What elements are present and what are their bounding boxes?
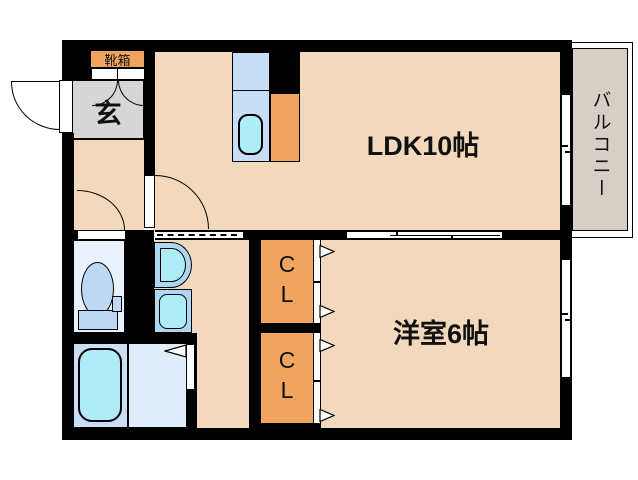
ldk-balcony-window <box>560 95 572 205</box>
corridor-floor <box>197 240 249 428</box>
wall-bath-right-lower <box>186 390 197 428</box>
bedroom-window <box>560 260 572 377</box>
shoebox-label: 靴箱 <box>104 50 130 69</box>
kitchen-counter-upper <box>232 52 270 92</box>
bedroom-label: 洋室6帖 <box>341 314 541 348</box>
ldk-door-leaf <box>144 175 155 228</box>
wall-pipe-space <box>125 230 154 343</box>
wall-hall-ldk <box>144 40 155 175</box>
ldk-label: LDK10帖 <box>323 126 523 160</box>
closet2-label: C L <box>261 343 313 407</box>
wall-genkan-corner <box>72 40 92 80</box>
closet1-door-arrow-bottom <box>319 305 335 318</box>
wall-right-upper <box>560 52 572 95</box>
wall-kitchen-block <box>270 40 300 93</box>
wall-right-lower <box>560 377 572 440</box>
toilet-door-gap <box>78 230 125 240</box>
wall-left-lower <box>62 133 74 440</box>
bedroom-window-tick-2 <box>565 319 571 321</box>
sliding-panel-line <box>390 235 500 236</box>
closet2-door-tick <box>314 380 320 382</box>
wall-closet-divider <box>249 323 321 333</box>
ldk-window-tick-2 <box>565 151 571 153</box>
genkan-label: 玄 <box>72 93 144 129</box>
washroom-sliding-door <box>155 230 243 240</box>
bathroom-door-strip <box>186 344 195 390</box>
sliding-panel-tick-2 <box>451 235 453 238</box>
closet1-door-arrow-top <box>319 245 335 258</box>
wall-bath-top <box>72 333 197 343</box>
bedroom-window-tick-1 <box>562 313 568 315</box>
washing-machine-drum <box>159 294 187 329</box>
entrance-door-arc <box>11 82 60 130</box>
floor-plan: 靴箱 玄 LDK10帖 洋室6帖 バルコニー C L C L <box>0 0 638 480</box>
shoebox: 靴箱 <box>90 50 145 68</box>
ldk-bedroom-sliding-door <box>347 230 502 240</box>
closet1-door-tick <box>314 281 320 283</box>
bathroom-door-arrow <box>164 344 187 358</box>
toilet-bowl <box>81 262 114 316</box>
toilet-tank <box>78 310 118 330</box>
wall-hall-seg <box>62 230 78 240</box>
closet2-door-arrow-bottom <box>319 409 335 422</box>
balcony-label: バルコニー <box>586 70 614 220</box>
wall-right-middle <box>560 205 572 260</box>
toilet-side-unit <box>112 296 122 312</box>
bathtub <box>78 348 122 422</box>
shoebox-door-divider <box>117 69 118 79</box>
closet1-label: C L <box>261 247 313 311</box>
sliding-panel-tick-1 <box>396 232 398 236</box>
kitchen-sink <box>238 114 263 155</box>
refrigerator-space <box>270 93 300 162</box>
wall-ldk-bedroom-seg <box>502 230 560 240</box>
wall-closet-left <box>249 230 261 440</box>
washroom-sliding-door-dash <box>157 234 237 236</box>
closet2-door-arrow-top <box>319 339 335 352</box>
shoebox-door-strip <box>92 68 144 80</box>
ldk-window-tick-1 <box>562 145 568 147</box>
entrance-door-leaf <box>59 80 73 133</box>
wall-closet-bottom <box>249 423 321 433</box>
